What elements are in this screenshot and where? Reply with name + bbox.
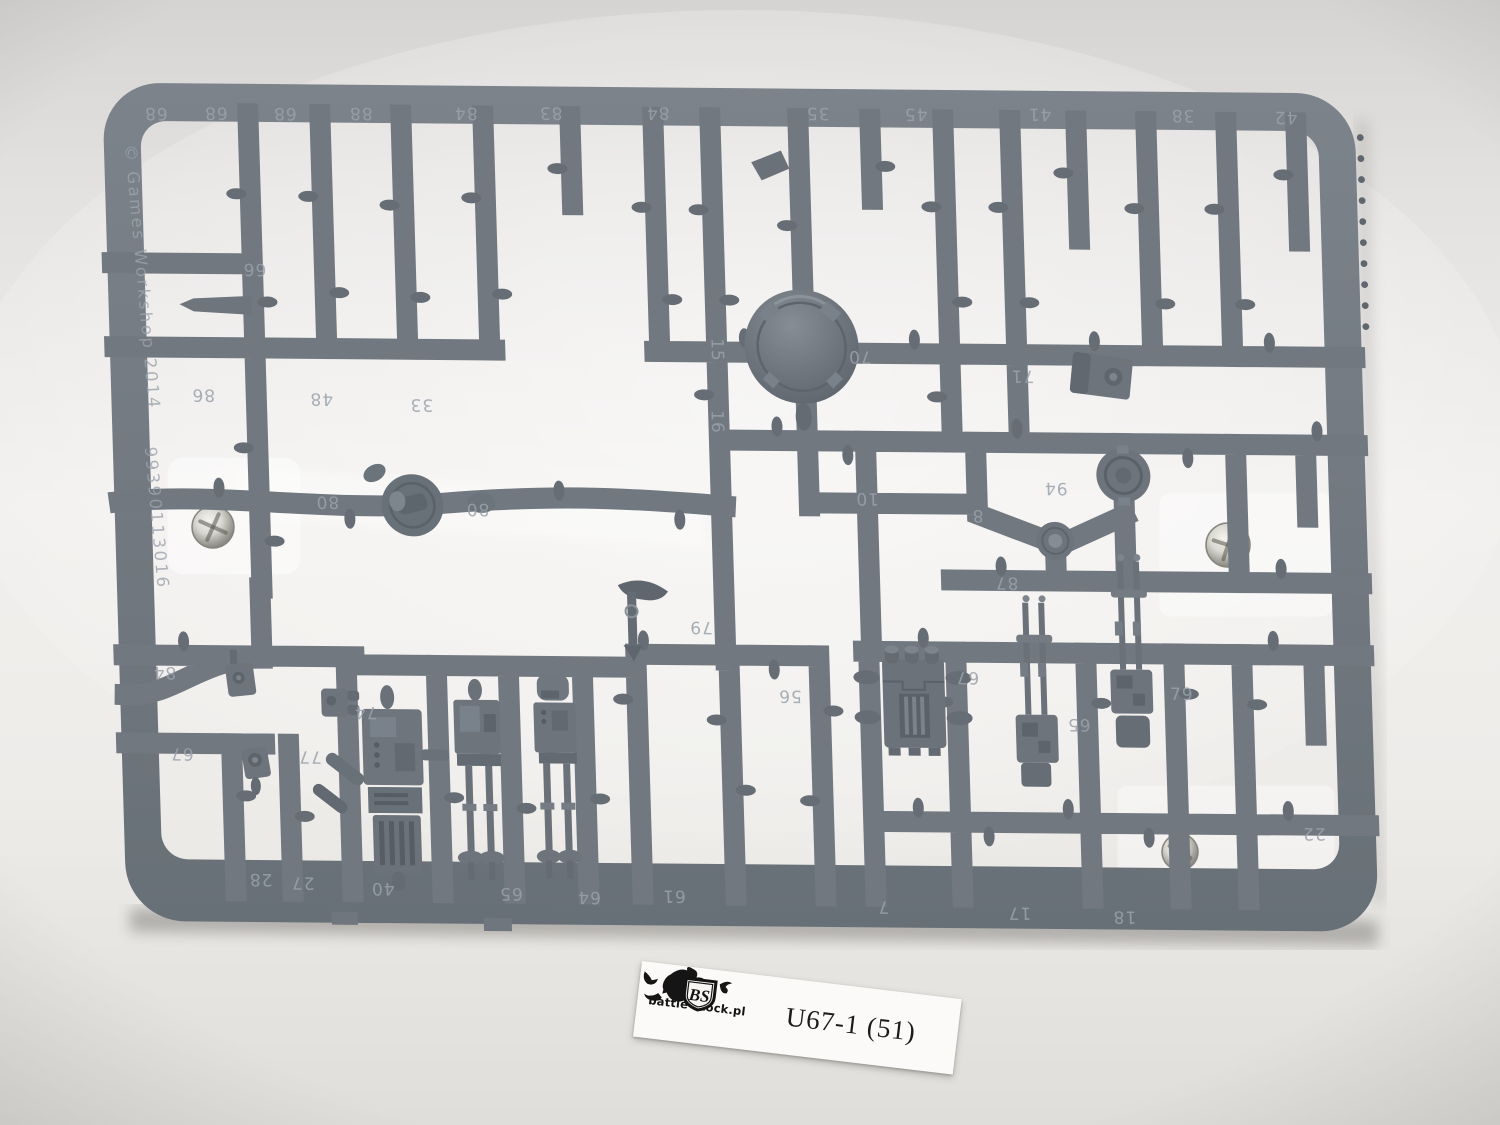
shop-logo-block: BS battle-stock.pl	[645, 993, 750, 1019]
shop-logo-initials: BS	[687, 985, 711, 1006]
photo-of-model-sprue: © Games Workshop 2014 99390113016 686868…	[0, 0, 1500, 1125]
photo-vignette	[0, 0, 1500, 1125]
sprue-photo-canvas: © Games Workshop 2014 99390113016 686868…	[0, 0, 1500, 1125]
sprue-code: U67-1 (51)	[757, 998, 949, 1051]
